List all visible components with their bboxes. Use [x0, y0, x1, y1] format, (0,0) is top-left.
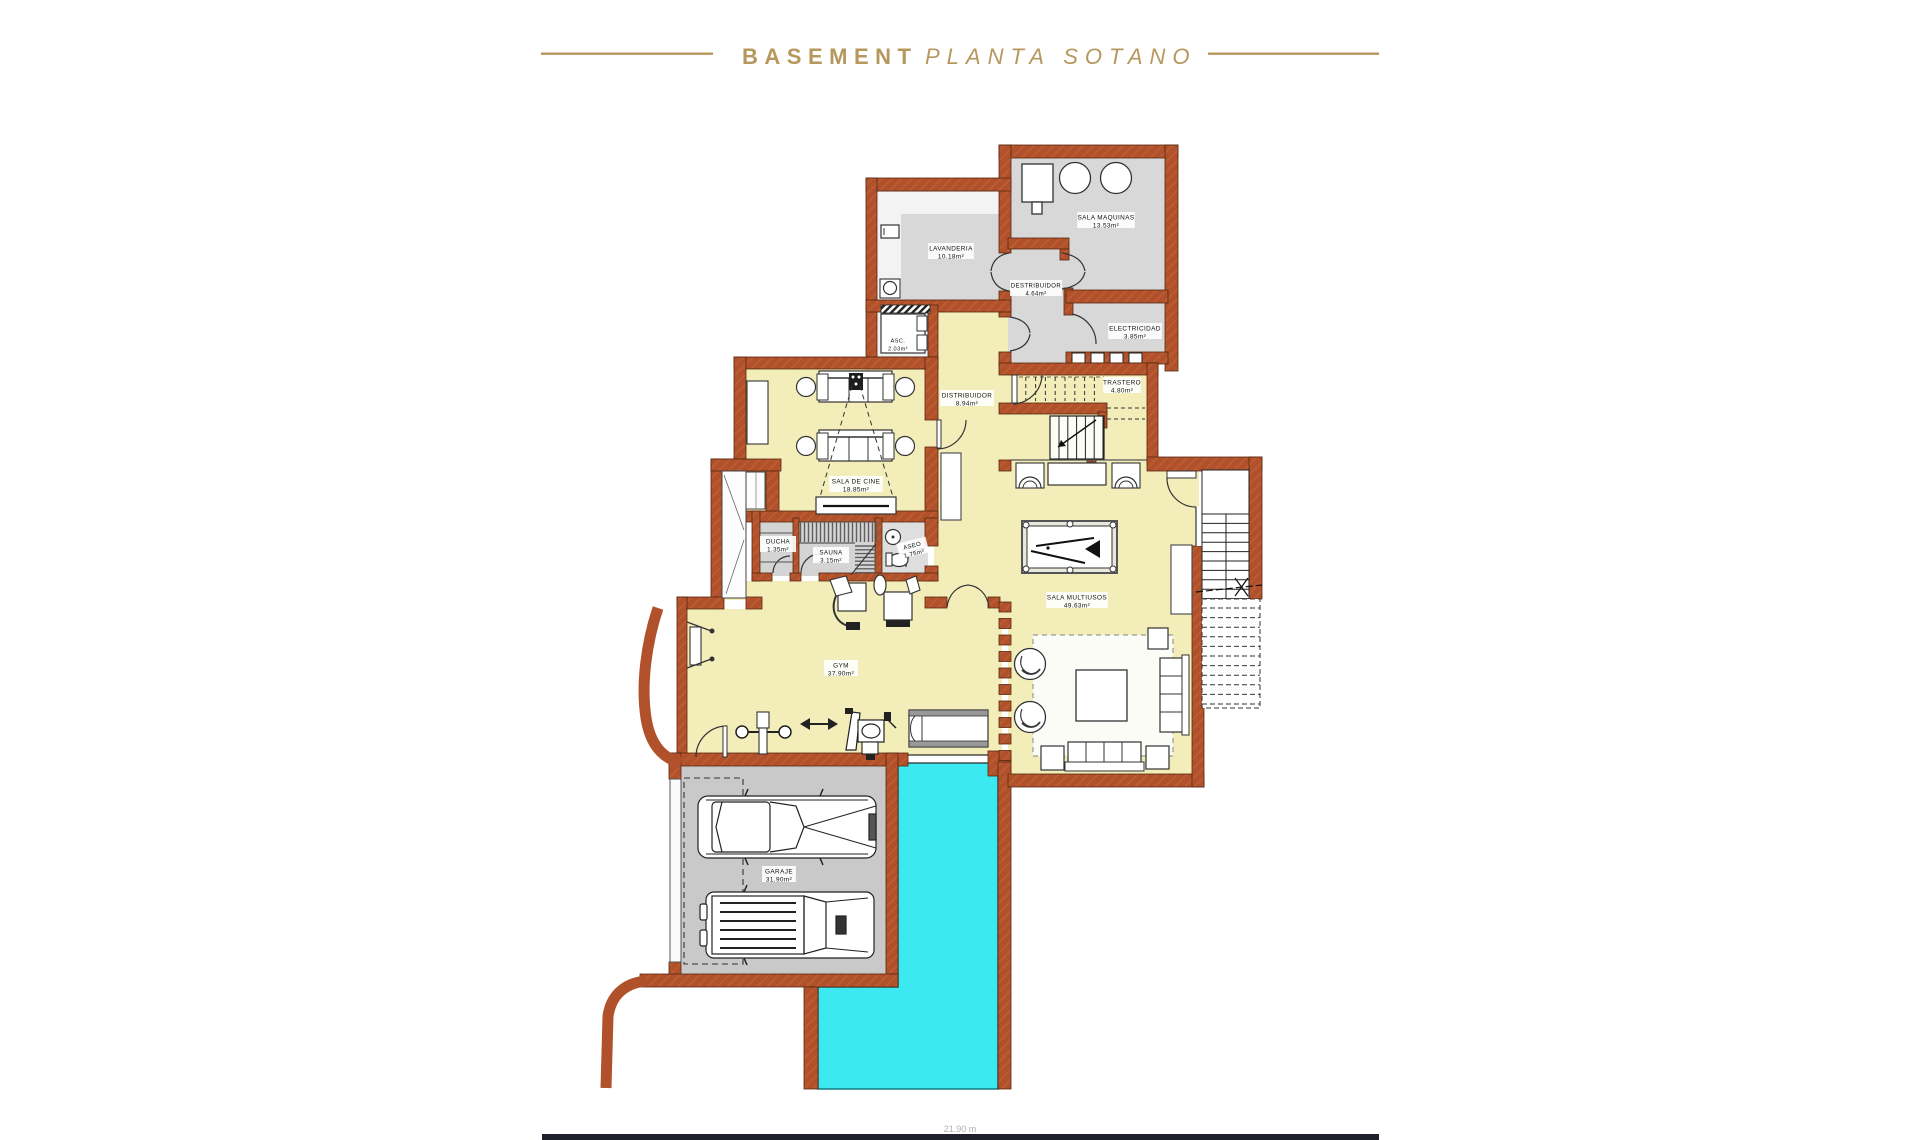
svg-text:SAUNA: SAUNA: [819, 550, 843, 557]
svg-text:SALA MULTIUSOS: SALA MULTIUSOS: [1047, 595, 1107, 602]
svg-text:ASC.: ASC.: [891, 339, 906, 345]
svg-text:LAVANDERIA: LAVANDERIA: [929, 246, 973, 253]
svg-text:GARAJE: GARAJE: [765, 869, 793, 876]
svg-text:3.85m²: 3.85m²: [1124, 334, 1146, 341]
svg-text:DISTRIBUIDOR: DISTRIBUIDOR: [942, 393, 993, 400]
svg-text:10.18m²: 10.18m²: [938, 254, 964, 261]
svg-text:4.80m²: 4.80m²: [1111, 388, 1133, 395]
svg-text:PLANTA SOTANO: PLANTA SOTANO: [925, 44, 1197, 69]
svg-text:ELECTRICIDAD: ELECTRICIDAD: [1109, 326, 1161, 333]
svg-text:SALA DE CINE: SALA DE CINE: [832, 479, 881, 486]
svg-text:37.90m²: 37.90m²: [828, 671, 854, 678]
svg-text:SALA MAQUINAS: SALA MAQUINAS: [1077, 215, 1134, 222]
svg-text:8.94m²: 8.94m²: [956, 401, 978, 408]
svg-text:13.53m²: 13.53m²: [1093, 223, 1119, 230]
svg-text:BASEMENT: BASEMENT: [742, 44, 917, 69]
svg-text:21.90 m: 21.90 m: [944, 1124, 977, 1134]
svg-text:3.15m²: 3.15m²: [820, 558, 842, 565]
svg-text:DUCHA: DUCHA: [766, 539, 790, 546]
svg-text:2.03m²: 2.03m²: [888, 347, 908, 353]
svg-text:18.85m²: 18.85m²: [843, 487, 869, 494]
svg-text:GYM: GYM: [833, 663, 849, 670]
svg-text:4.64m²: 4.64m²: [1025, 292, 1046, 298]
svg-text:1.35m²: 1.35m²: [767, 547, 789, 554]
svg-text:DESTRIBUIDOR: DESTRIBUIDOR: [1011, 284, 1061, 290]
svg-text:TRASTERO: TRASTERO: [1103, 380, 1141, 387]
svg-text:49.63m²: 49.63m²: [1064, 603, 1090, 610]
svg-text:31.90m²: 31.90m²: [766, 877, 792, 884]
